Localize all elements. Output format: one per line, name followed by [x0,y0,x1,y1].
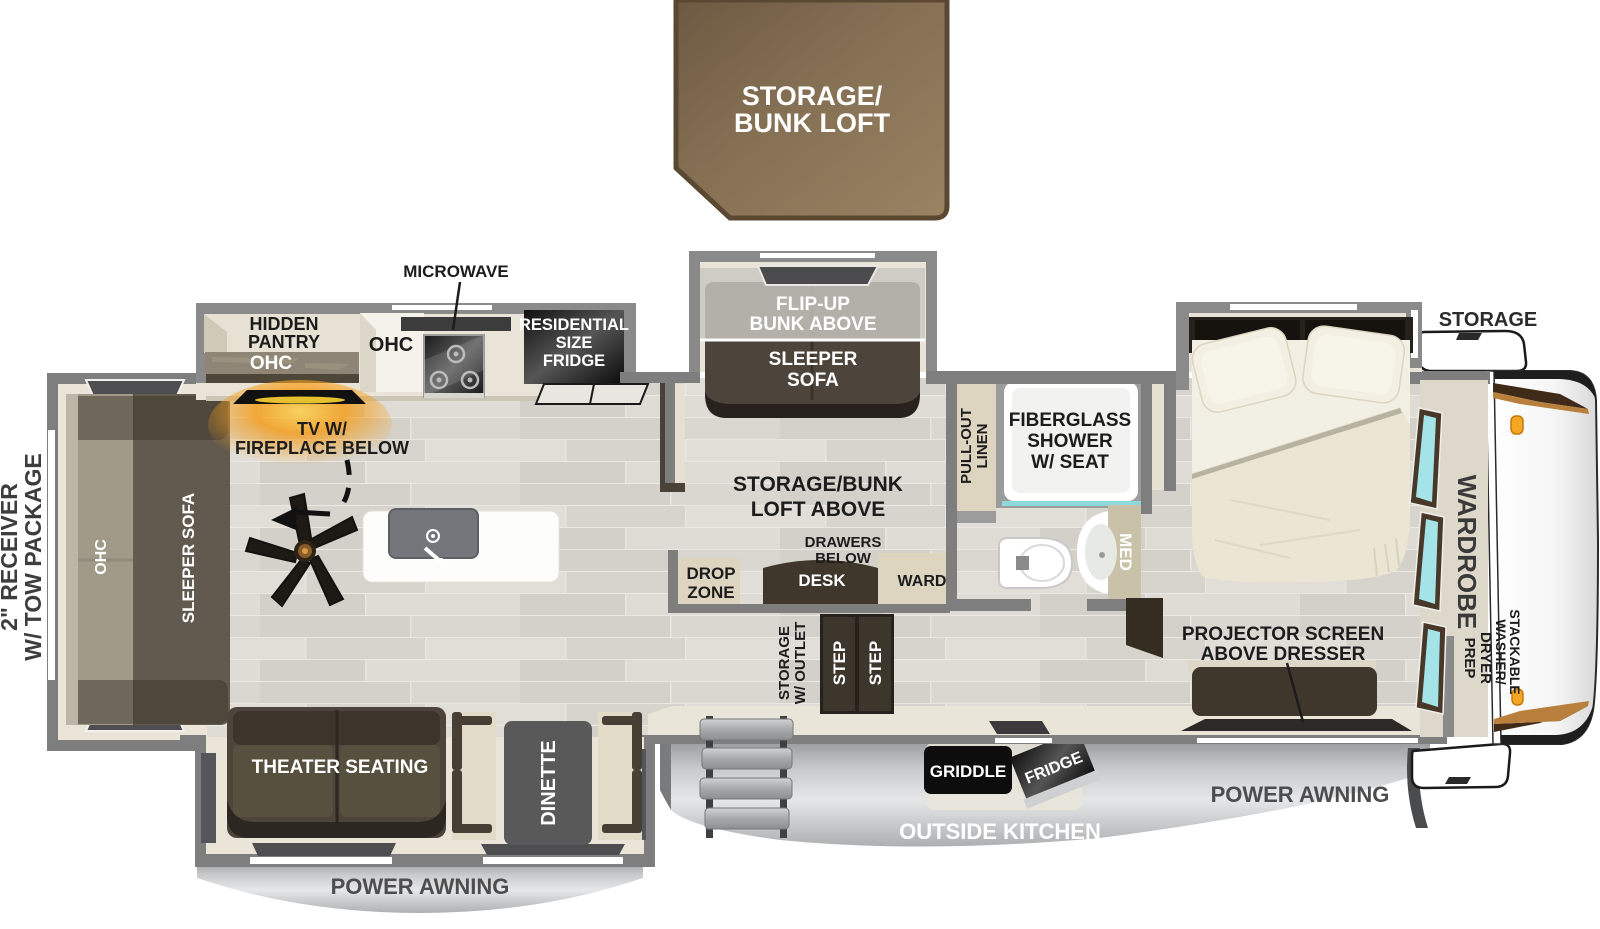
svg-text:FIBERGLASS: FIBERGLASS [1009,410,1131,431]
svg-text:MICROWAVE: MICROWAVE [403,262,508,281]
svg-text:DRYER: DRYER [1477,632,1494,684]
svg-text:LINEN: LINEN [974,424,991,469]
svg-text:BUNK ABOVE: BUNK ABOVE [749,314,876,335]
svg-text:WARD: WARD [898,573,947,590]
svg-text:STEP: STEP [830,641,849,685]
svg-text:FLIP-UP: FLIP-UP [776,294,850,315]
svg-text:PROJECTOR SCREEN: PROJECTOR SCREEN [1182,624,1384,645]
svg-text:SLEEPER: SLEEPER [769,349,858,370]
svg-text:BUNK LOFT: BUNK LOFT [734,108,890,138]
svg-text:OHC: OHC [369,334,413,356]
svg-text:WARDROBE: WARDROBE [1452,475,1482,630]
svg-text:PULL-OUT: PULL-OUT [958,408,975,484]
svg-text:STORAGE/BUNK: STORAGE/BUNK [733,473,903,496]
svg-text:FRIDGE: FRIDGE [543,352,605,370]
svg-text:DINETTE: DINETTE [538,740,560,826]
svg-text:RESIDENTIAL: RESIDENTIAL [519,316,629,334]
svg-text:SLEEPER SOFA: SLEEPER SOFA [179,493,198,623]
svg-text:ABOVE DRESSER: ABOVE DRESSER [1201,644,1366,665]
svg-text:SHOWER: SHOWER [1027,431,1113,452]
svg-text:THEATER SEATING: THEATER SEATING [252,757,429,778]
svg-text:BELOW: BELOW [815,550,872,567]
svg-text:FIREPLACE BELOW: FIREPLACE BELOW [235,438,409,458]
svg-text:SOFA: SOFA [787,370,839,391]
svg-text:W/ SEAT: W/ SEAT [1031,452,1109,473]
svg-text:W/ OUTLET: W/ OUTLET [792,622,809,705]
svg-text:PANTRY: PANTRY [248,332,320,352]
svg-text:2" RECEIVER: 2" RECEIVER [0,483,22,631]
svg-text:STORAGE/: STORAGE/ [742,81,883,111]
svg-text:HIDDEN: HIDDEN [249,314,318,334]
svg-text:LOFT ABOVE: LOFT ABOVE [751,498,886,521]
svg-text:STEP: STEP [866,641,885,685]
svg-text:GRIDDLE: GRIDDLE [930,762,1007,781]
svg-text:WASHER/: WASHER/ [1493,619,1509,684]
svg-text:POWER AWNING: POWER AWNING [1211,782,1390,807]
svg-text:TV W/: TV W/ [297,419,347,439]
svg-text:OUTSIDE KITCHEN: OUTSIDE KITCHEN [899,819,1101,844]
svg-text:PREP: PREP [1461,638,1478,679]
svg-text:STORAGE: STORAGE [1439,309,1538,331]
svg-text:ZONE: ZONE [687,583,734,602]
svg-text:STORAGE: STORAGE [776,626,793,700]
svg-text:MED: MED [1116,533,1135,571]
svg-text:DRAWERS: DRAWERS [805,534,882,551]
svg-text:POWER AWNING: POWER AWNING [331,874,510,899]
svg-text:SIZE: SIZE [556,334,593,352]
svg-text:OHC: OHC [93,539,110,575]
svg-text:W/ TOW PACKAGE: W/ TOW PACKAGE [20,453,46,660]
svg-text:DROP: DROP [686,564,735,583]
svg-text:DESK: DESK [798,571,846,590]
svg-text:OHC: OHC [250,353,293,374]
